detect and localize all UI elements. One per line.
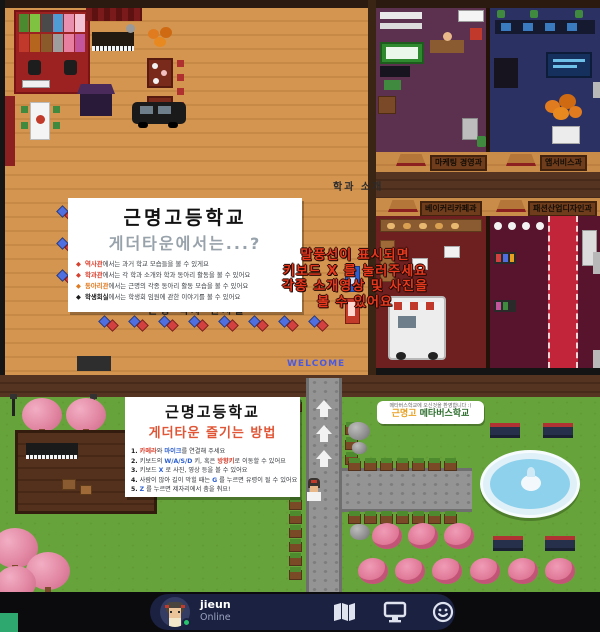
path-arrow-icon	[316, 450, 332, 469]
info-box-bottom: 근명고등학교 게더타운 즐기는 방법 1. 카메라와 마이크를 연결해 주세요 …	[125, 397, 300, 497]
grand-piano	[92, 32, 134, 46]
pc-desk	[380, 66, 410, 77]
planter	[348, 514, 361, 524]
flower-bush	[508, 558, 538, 584]
dept-sign-bakery: 베이커리카페과	[420, 201, 482, 217]
info-box-bottom-title: 근명고등학교	[131, 401, 294, 422]
path-arrow-icon	[316, 400, 332, 419]
lamp-post	[12, 398, 15, 416]
keyboard-tip-line: 각종 소개영상 및 사진을	[262, 279, 448, 295]
planter	[289, 542, 302, 552]
welcome-mat: WELCOME	[287, 359, 345, 369]
flower-bush	[395, 558, 425, 584]
planter	[289, 570, 302, 580]
bench	[493, 536, 523, 548]
office-chair	[28, 60, 41, 75]
green-screen	[380, 42, 424, 64]
online-status-dot	[182, 618, 191, 627]
pc-desk	[494, 58, 518, 88]
plant	[575, 10, 583, 18]
flower-bush	[545, 558, 575, 584]
flower-bush	[372, 523, 402, 549]
welcome-banner-main: 근명고 메타버스학교	[377, 409, 484, 420]
planter	[289, 500, 302, 510]
bread-shelf	[380, 219, 482, 232]
bookshelf	[378, 96, 396, 114]
planter	[364, 514, 377, 524]
door-mark	[593, 350, 600, 368]
info-box-top-title: 근명고등학교	[76, 203, 294, 230]
keyboard-tip-line: 말풍선이 표시되면	[262, 248, 448, 264]
planter	[348, 461, 361, 471]
stage-piano	[77, 356, 111, 371]
chair	[53, 122, 60, 129]
photo-backdrop-row1	[19, 14, 85, 32]
rock	[348, 422, 370, 440]
piano-keys	[92, 46, 134, 51]
clothes-rack	[494, 252, 516, 264]
keyboard-tip-line: 키보드 X 를 눌러주세요	[262, 264, 448, 280]
plant	[497, 10, 505, 18]
flower-bush	[432, 558, 462, 584]
sofa	[384, 80, 401, 90]
planter	[289, 528, 302, 538]
door-mark	[593, 252, 600, 274]
flower-bush	[444, 523, 474, 549]
dept-sign-marketing: 마케팅 경영과	[430, 155, 487, 171]
photo-backdrop-row2	[19, 34, 85, 52]
door-mark	[593, 82, 600, 98]
keyboard-tip-line: 볼 수 있어요	[262, 295, 448, 311]
map-icon[interactable]	[332, 601, 356, 623]
planter	[289, 514, 302, 524]
cherry-tree	[66, 398, 106, 432]
bench	[490, 423, 520, 435]
bench	[545, 536, 575, 548]
balloon-row	[100, 318, 330, 334]
step-item: 2. 키보드의 W/A/S/D 키, 혹은 방향키로 이동할 수 있어요	[131, 457, 294, 467]
garden-path-horizontal	[342, 468, 472, 512]
office-chair	[64, 60, 77, 75]
bulletin-board	[470, 28, 482, 40]
corner-video-widget[interactable]	[0, 613, 18, 632]
step-item: 3. 키보드 X 로 사진, 영상 등을 볼 수 있어요	[131, 466, 294, 476]
clothes-rack	[494, 300, 516, 312]
room-divider	[486, 8, 490, 152]
welcome-banner: 메타버스학교에 오신것을 환영합니다 :) 근명고 메타버스학교	[377, 401, 484, 424]
banquet-table	[30, 102, 50, 140]
info-box-bottom-steps: 1. 카메라와 마이크를 연결해 주세요 2. 키보드의 W/A/S/D 키, …	[131, 447, 294, 495]
sign-strip	[22, 80, 50, 88]
rock	[352, 442, 367, 454]
copier	[462, 118, 478, 140]
teacher-desk	[430, 40, 464, 53]
bench	[543, 423, 573, 435]
bottom-bar: jieun Online	[0, 592, 600, 632]
chair	[177, 60, 184, 67]
planter	[396, 461, 409, 471]
pumpkin-cluster	[148, 27, 174, 47]
plant	[477, 136, 486, 147]
dining-table	[147, 58, 173, 88]
cherry-tree	[22, 398, 62, 432]
shelf	[380, 12, 422, 19]
user-info: jieun Online	[200, 599, 231, 623]
step-item: 1. 카메라와 마이크를 연결해 주세요	[131, 447, 294, 457]
plant	[530, 10, 538, 18]
gather-map-canvas[interactable]: 근명 역사 전시실 WELCOME 학과 소개	[0, 0, 600, 632]
planter	[396, 514, 409, 524]
market-stall	[80, 90, 112, 116]
kitchen-cart	[552, 126, 580, 144]
sign-awning	[396, 154, 426, 166]
corridor-sign: 학과 소개	[333, 178, 383, 193]
flower-bush	[408, 523, 438, 549]
sign-awning	[388, 200, 418, 212]
planter	[364, 461, 377, 471]
dept-sign-webservice: 앱서비스과	[540, 155, 587, 171]
emote-icon[interactable]	[432, 601, 456, 623]
room-divider	[486, 216, 490, 368]
player-avatar[interactable]	[306, 478, 322, 504]
fountain	[480, 450, 580, 518]
step-item: 5. Z 를 누르면 제자리에서 춤을 춰요!	[131, 485, 294, 495]
npc-person	[443, 32, 452, 41]
keyboard-tip: 말풍선이 표시되면 키보드 X 를 눌러주세요 각종 소개영상 및 사진을 볼 …	[262, 248, 448, 310]
stage-curtain	[86, 8, 142, 21]
screen-share-icon[interactable]	[383, 601, 407, 623]
chair	[21, 122, 28, 129]
planter	[380, 461, 393, 471]
big-screen	[546, 52, 592, 78]
dept-sign-fashion: 패션산업디자인과	[528, 201, 597, 217]
planter	[428, 514, 441, 524]
sign-awning	[506, 154, 536, 166]
user-status: Online	[200, 613, 231, 623]
computer-row	[495, 20, 595, 34]
planter	[289, 556, 302, 566]
sign-awning	[496, 200, 526, 212]
shelf	[380, 23, 422, 29]
statue-bust	[126, 24, 135, 33]
step-item: 4. 사람이 많아 길이 막힐 때는 G 를 누르면 유령이 될 수 있어요	[131, 476, 294, 486]
control-bar: jieun Online	[150, 594, 455, 630]
planter	[444, 461, 457, 471]
top-wall	[0, 0, 600, 8]
flower-bush	[470, 558, 500, 584]
pumpkin-pile	[545, 94, 583, 120]
whiteboard	[458, 10, 484, 22]
chair	[21, 106, 28, 113]
mannequin-row	[494, 222, 542, 238]
rock	[350, 524, 370, 540]
chair	[177, 74, 184, 81]
black-car	[132, 102, 186, 124]
chair	[177, 88, 184, 95]
user-name: jieun	[200, 599, 231, 610]
side-carpet	[5, 96, 15, 166]
info-box-bottom-subtitle: 게더타운 즐기는 방법	[131, 422, 294, 441]
path-arrow-icon	[316, 425, 332, 444]
wall-band	[376, 172, 600, 198]
runway-carpet	[548, 216, 578, 368]
planter	[412, 461, 425, 471]
flower-bush	[358, 558, 388, 584]
chair	[53, 106, 60, 113]
planter	[428, 461, 441, 471]
